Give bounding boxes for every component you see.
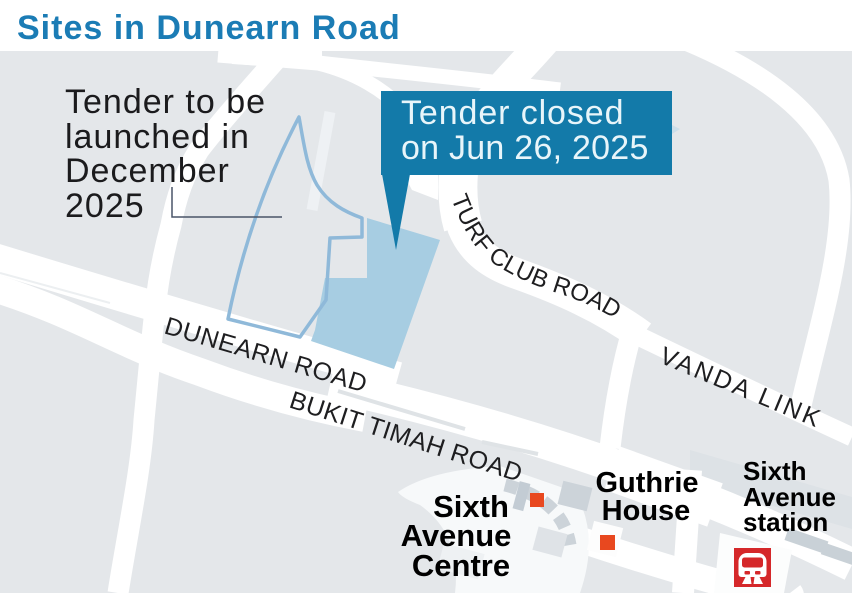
svg-text:station: station xyxy=(743,507,828,537)
svg-text:December: December xyxy=(65,152,230,190)
svg-text:on Jun 26, 2025: on Jun 26, 2025 xyxy=(401,129,649,167)
svg-text:House: House xyxy=(602,495,691,527)
svg-text:Tender closed: Tender closed xyxy=(401,94,624,132)
svg-text:launched in: launched in xyxy=(65,118,250,156)
svg-text:Sites in Dunearn Road: Sites in Dunearn Road xyxy=(17,9,401,47)
svg-text:Tender to be: Tender to be xyxy=(65,83,266,121)
svg-text:Centre: Centre xyxy=(412,548,510,583)
svg-text:2025: 2025 xyxy=(65,187,145,225)
